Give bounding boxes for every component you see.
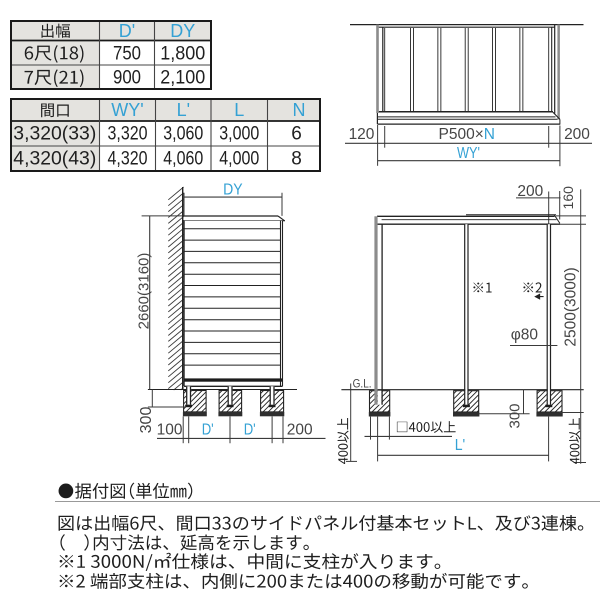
svg-text:200: 200 [564, 126, 590, 143]
svg-text:300: 300 [138, 407, 155, 434]
svg-text:4,320: 4,320 [108, 148, 148, 169]
svg-text:L': L' [455, 437, 466, 454]
svg-text:4,320(43): 4,320(43) [13, 148, 96, 169]
svg-text:120: 120 [349, 126, 375, 143]
svg-text:2,100: 2,100 [160, 68, 205, 89]
svg-text:4,000: 4,000 [219, 148, 259, 169]
svg-text:DY: DY [223, 181, 243, 198]
svg-text:WY': WY' [111, 100, 143, 120]
svg-text:6: 6 [291, 123, 302, 144]
svg-text:G.L.: G.L. [353, 378, 372, 390]
svg-text:L': L' [177, 100, 190, 120]
svg-text:2500(3000): 2500(3000) [563, 267, 580, 346]
svg-text:P500×N: P500×N [439, 126, 495, 143]
svg-text:3,000: 3,000 [219, 123, 259, 144]
svg-text:100: 100 [157, 422, 183, 439]
svg-text:WY': WY' [457, 145, 480, 162]
svg-text:L: L [234, 100, 244, 120]
svg-text:160: 160 [560, 186, 576, 210]
svg-text:300: 300 [506, 403, 523, 428]
svg-text:D': D' [119, 21, 135, 41]
svg-text:3,320: 3,320 [108, 123, 148, 144]
svg-text:N: N [293, 100, 306, 120]
svg-text:φ80: φ80 [511, 327, 539, 344]
svg-text:3,320(33): 3,320(33) [13, 123, 96, 144]
svg-text:200: 200 [517, 183, 543, 200]
svg-text:200: 200 [287, 422, 313, 439]
svg-text:D': D' [244, 422, 256, 439]
svg-text:900: 900 [113, 68, 141, 89]
svg-text:750: 750 [113, 43, 141, 64]
svg-text:D': D' [202, 422, 214, 439]
svg-text:3,060: 3,060 [163, 123, 203, 144]
svg-text:2660(3160): 2660(3160) [136, 253, 153, 330]
svg-text:8: 8 [291, 148, 302, 169]
svg-text:DY: DY [170, 21, 195, 41]
svg-text:4,060: 4,060 [163, 148, 203, 169]
svg-text:1,800: 1,800 [160, 43, 205, 64]
